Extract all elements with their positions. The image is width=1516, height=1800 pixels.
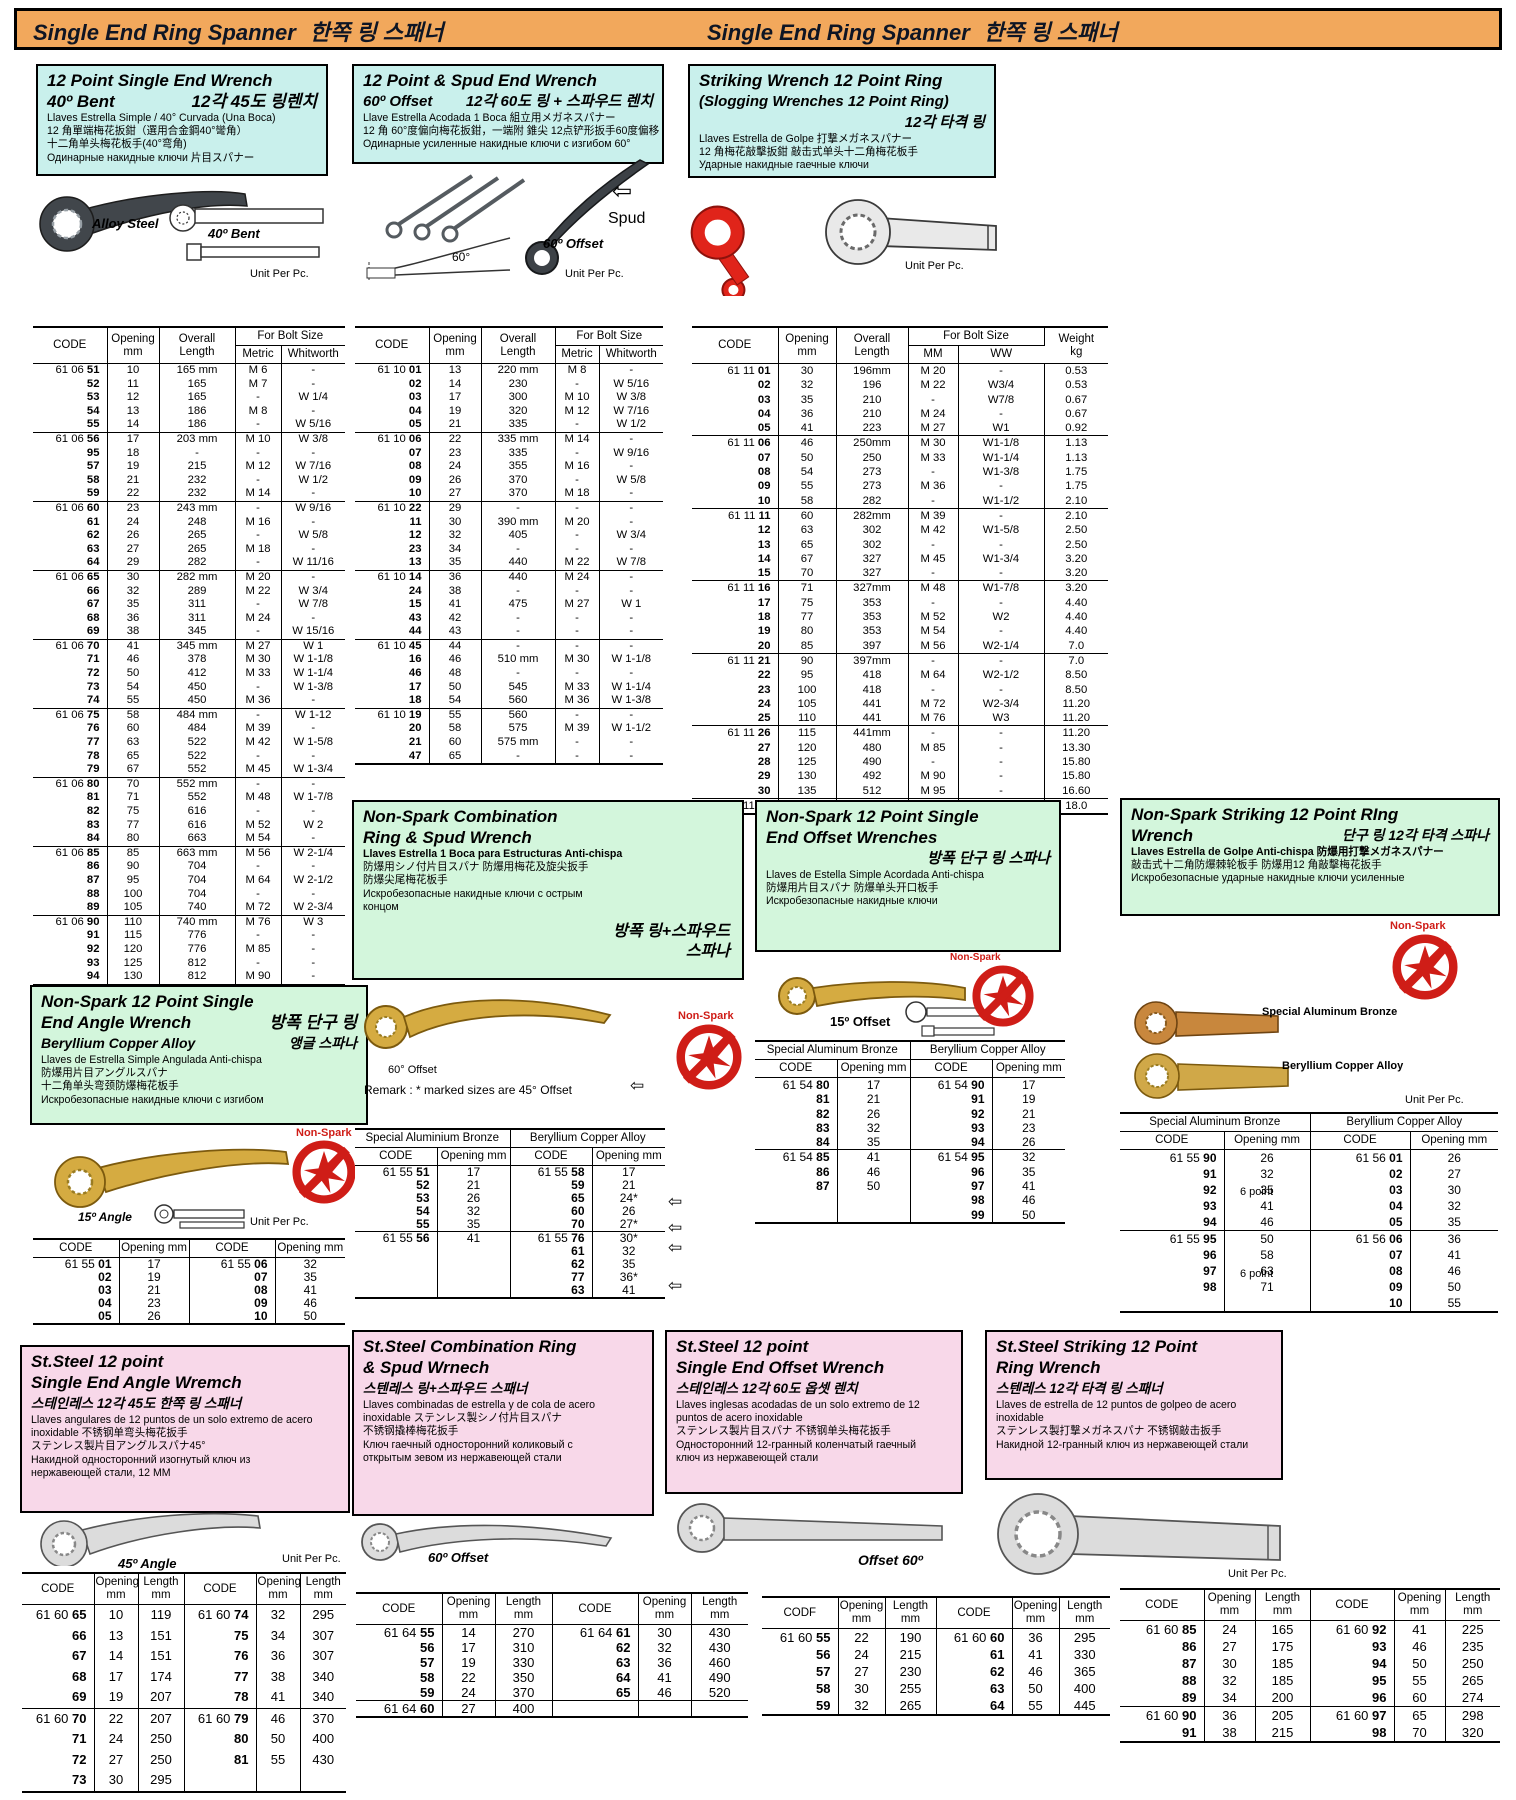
table-cell: W 1-3/4 — [281, 763, 345, 777]
offset-60-label: 60° Offset — [388, 1064, 437, 1076]
table-cell: 0.67 — [1044, 393, 1108, 407]
table-cell: - — [958, 596, 1044, 610]
table-cell: 19 — [442, 1655, 495, 1670]
table-row: 61 60 651011961 60 7432295 — [22, 1605, 346, 1626]
table-cell: 38 — [256, 1667, 300, 1688]
table-cell: 09 — [189, 1297, 275, 1310]
table-cell: 174 — [138, 1667, 184, 1688]
table-cell: 36 — [1012, 1629, 1059, 1647]
section-subtitle-kr: 12각 45도 링렌치 — [192, 91, 317, 112]
table-cell: 71 — [778, 581, 836, 596]
section-ststeel-angle-box: St.Steel 12 point Single End Angle Wremc… — [20, 1345, 350, 1513]
table-cell: 370 — [481, 474, 555, 488]
table-cell: 185 — [1255, 1655, 1310, 1672]
table-cell: M 30 — [908, 436, 958, 451]
table-cell: - — [599, 625, 663, 639]
table-cell: W 5/8 — [599, 474, 663, 488]
description-line: Ключ гаечный односторонний коликовый с — [363, 1439, 643, 1452]
bent-table: CODEOpening mmOverall LengthFor Bolt Siz… — [33, 326, 345, 986]
table-cell: 11 — [107, 378, 159, 392]
table-cell: 27* — [592, 1218, 665, 1232]
table-row: 9950 — [755, 1208, 1065, 1223]
ststeel-angle-table: CODEOpening mmLength mmCODEOpening mmLen… — [22, 1572, 346, 1793]
description-line: Накидной 12-гранный ключ из нержавеющей … — [996, 1439, 1272, 1452]
column-header: Length mm — [495, 1593, 552, 1625]
gold-spud-wrench-illustration — [360, 985, 615, 1060]
table-row: 0436210M 24-0.67 — [692, 407, 1108, 421]
table-cell — [184, 1770, 256, 1792]
table-cell: 50 — [1224, 1231, 1310, 1248]
table-row: 1130390 mmM 20- — [355, 516, 663, 530]
table-row: 0214230-W 5/16 — [355, 378, 663, 392]
table-cell: - — [958, 653, 1044, 668]
table-row: 1750545M 33W 1-1/4 — [355, 681, 663, 695]
table-cell: 62 — [33, 529, 107, 543]
table-cell: 95 — [33, 447, 107, 461]
table-cell: 41 — [256, 1687, 300, 1708]
table-cell: 64 — [33, 556, 107, 570]
table-row: 29130492M 90-15.80 — [692, 769, 1108, 783]
table-cell: 95 — [107, 874, 159, 888]
table-cell — [1120, 1295, 1224, 1312]
table-cell: 32 — [592, 1245, 665, 1258]
description-line: 12 角單端梅花扳鉗（選用合金鋼40°彎角） — [47, 125, 317, 138]
table-row: 5514186-W 5/16 — [33, 418, 345, 432]
table-cell: - — [281, 722, 345, 736]
table-cell: - — [281, 612, 345, 626]
table-cell: W 1-1/8 — [281, 653, 345, 667]
table-cell: 397 — [836, 639, 908, 654]
column-header: CODE — [355, 1148, 437, 1166]
column-header: Opening mm — [778, 327, 836, 364]
table-cell: 69 — [33, 625, 107, 639]
table-cell: - — [599, 364, 663, 378]
table-cell: 61 11 06 — [692, 436, 778, 451]
table-cell: W 1-1/4 — [599, 681, 663, 695]
table-row: 68171747738340 — [22, 1667, 346, 1688]
table-row: 83329323 — [755, 1121, 1065, 1135]
table-cell: 75 — [778, 596, 836, 610]
table-cell: 560 — [481, 708, 555, 722]
table-cell: 492 — [836, 769, 908, 783]
column-header: For Bolt Size — [908, 327, 1044, 346]
description-line: 防爆用シノ付片目スパナ 防爆用梅花及旋尖扳手 — [363, 861, 733, 874]
table-cell: 98 — [1120, 1279, 1224, 1295]
table-row: 7865522-- — [33, 750, 345, 764]
table-cell: 248 — [159, 516, 235, 530]
table-cell: 30 — [638, 1625, 691, 1641]
table-cell: 320 — [1445, 1724, 1500, 1742]
table-cell: 71 — [33, 653, 107, 667]
table-cell: - — [281, 364, 345, 378]
table-cell: 27 — [442, 1701, 495, 1718]
table-cell: 83 — [33, 819, 107, 833]
table-cell: - — [281, 447, 345, 461]
column-header: Opening mm — [256, 1573, 300, 1605]
table-cell: 17 — [592, 1166, 665, 1180]
table-row: 61 11 1160282mmM 39-2.10 — [692, 508, 1108, 523]
table-cell: 66 — [33, 585, 107, 599]
table-row: 61 06 5110165 mmM 6- — [33, 364, 345, 378]
table-cell: 274 — [1445, 1689, 1500, 1707]
table-row: 82269221 — [755, 1107, 1065, 1121]
table-cell: 15.80 — [1044, 755, 1108, 769]
arrow-left-icon: ⇦ — [668, 1240, 682, 1256]
column-header: Length mm — [691, 1593, 748, 1625]
table-cell: 10 — [189, 1310, 275, 1324]
table-row: 2438--- — [355, 585, 663, 599]
table-cell: 307 — [300, 1646, 346, 1667]
column-header: Length mm — [300, 1573, 346, 1605]
table-cell: M 90 — [235, 970, 281, 985]
table-cell: W 11/16 — [281, 556, 345, 570]
page-header-bar: Single End Ring Spanner한쪽 링 스패너 Single E… — [14, 8, 1502, 50]
table-cell: 61 11 11 — [692, 508, 778, 523]
table-cell: 05 — [692, 421, 778, 436]
table-cell: 265 — [885, 1697, 936, 1715]
table-cell: M 10 — [555, 391, 599, 405]
table-cell — [437, 1284, 510, 1298]
section-title: Striking Wrench 12 Point Ring — [699, 70, 985, 91]
table-cell: 61 55 95 — [1120, 1231, 1224, 1248]
table-row: 87301859450250 — [1120, 1655, 1500, 1672]
table-row: 0750250M 33W1-1/41.13 — [692, 451, 1108, 465]
table-cell: - — [555, 529, 599, 543]
table-cell: - — [481, 612, 555, 626]
table-cell: W 1-1/8 — [599, 653, 663, 667]
table-cell: 84 — [755, 1135, 837, 1150]
table-cell: 105 — [778, 697, 836, 711]
column-header: CODE — [33, 1239, 119, 1258]
column-header: CODE — [33, 327, 107, 364]
table-cell: - — [235, 750, 281, 764]
table-cell: 776 — [159, 929, 235, 943]
column-header: Beryllium Copper Alloy — [1310, 1113, 1498, 1132]
table-cell: 61 60 85 — [1120, 1621, 1204, 1639]
table-cell: 54 — [33, 405, 107, 419]
table-cell: W 1 — [599, 598, 663, 612]
catalog-table: CODFOpening mmLength mmCODEOpening mmLen… — [762, 1596, 1110, 1716]
table-cell: - — [908, 465, 958, 479]
description-line: Искробезопасные накидные ключи с острым … — [363, 888, 593, 914]
table-cell: - — [481, 585, 555, 599]
table-cell: 65 — [1394, 1707, 1445, 1725]
table-cell: 50 — [778, 451, 836, 465]
table-cell: 97 — [910, 1179, 992, 1193]
column-header: Opening mm — [1410, 1132, 1498, 1150]
table-cell: 812 — [159, 970, 235, 985]
table-cell — [755, 1208, 837, 1223]
table-cell: 92 — [1120, 1182, 1224, 1198]
table-cell: 18 — [355, 694, 429, 708]
table-cell: 205 — [1255, 1707, 1310, 1725]
table-cell: W 2-1/4 — [281, 846, 345, 860]
catalog-table: CODEOpening mmLength mmCODEOpening mmLen… — [22, 1572, 346, 1793]
table-cell: 327mm — [836, 581, 908, 596]
table-cell: 90 — [107, 860, 159, 874]
section-title: St.Steel 12 point — [31, 1351, 339, 1372]
table-cell: - — [281, 694, 345, 708]
table-cell: 61 60 60 — [936, 1629, 1012, 1647]
table-cell: 57 — [762, 1663, 838, 1680]
table-cell: M 36 — [908, 479, 958, 493]
table-cell: - — [235, 957, 281, 971]
table-cell: 335 mm — [481, 432, 555, 446]
table-cell: 30 — [838, 1680, 885, 1697]
table-cell: - — [555, 378, 599, 392]
table-cell: - — [958, 538, 1044, 552]
table-cell: 85 — [107, 846, 159, 860]
table-cell: 14 — [107, 418, 159, 432]
table-cell: 14 — [429, 378, 481, 392]
column-header: Whitworth — [281, 346, 345, 364]
table-cell: 151 — [138, 1626, 184, 1647]
table-cell: 46 — [429, 653, 481, 667]
table-row: 6632289M 22W 3/4 — [33, 585, 345, 599]
table-row: 0955273M 36-1.75 — [692, 479, 1108, 493]
table-cell: 552 — [159, 763, 235, 777]
table-row: 84359426 — [755, 1135, 1065, 1150]
table-cell: - — [908, 393, 958, 407]
table-cell: 04 — [1310, 1198, 1410, 1214]
table-cell: 125 — [778, 755, 836, 769]
table-cell: 24 — [429, 460, 481, 474]
table-cell: 61 10 14 — [355, 570, 429, 584]
table-cell: 370 — [495, 1685, 552, 1701]
table-row: 91382159870320 — [1120, 1724, 1500, 1742]
table-row: 53266524* — [355, 1192, 665, 1205]
table-cell: W 1/2 — [599, 418, 663, 432]
table-cell: 38 — [107, 625, 159, 639]
table-cell: - — [958, 755, 1044, 769]
table-cell: M 85 — [235, 943, 281, 957]
table-cell: W 1/4 — [281, 391, 345, 405]
section-subtitle-kr: 방폭 단구 링 스파나 — [766, 848, 1050, 869]
table-cell: 50 — [1394, 1655, 1445, 1672]
table-cell: M 39 — [235, 722, 281, 736]
table-cell: 65 — [510, 1192, 592, 1205]
table-cell: 120 — [107, 943, 159, 957]
table-cell: 68 — [33, 612, 107, 626]
column-header: Opening mm — [119, 1239, 189, 1258]
table-cell: 1.13 — [1044, 436, 1108, 451]
table-cell — [355, 1245, 437, 1258]
description-line: ключ из нержавеющей стали — [676, 1452, 952, 1465]
table-cell: 522 — [159, 736, 235, 750]
table-cell: 35 — [1410, 1214, 1498, 1231]
table-cell — [638, 1701, 691, 1718]
table-cell: M 8 — [555, 364, 599, 378]
table-row: 61 10 0113220 mmM 8- — [355, 364, 663, 378]
table-cell: 484 — [159, 722, 235, 736]
table-cell: 60 — [1394, 1689, 1445, 1707]
table-row: 1646510 mmM 30W 1-1/8 — [355, 653, 663, 667]
page-title-left: Single End Ring Spanner한쪽 링 스패너 — [33, 15, 443, 47]
table-cell: 04 — [33, 1297, 119, 1310]
table-row: 61 11 2190397mm--7.0 — [692, 653, 1108, 668]
table-cell: 61 55 76 — [510, 1232, 592, 1246]
table-cell: 430 — [691, 1625, 748, 1641]
table-cell: 35 — [429, 556, 481, 570]
table-cell: - — [958, 364, 1044, 379]
column-header: Beryllium Copper Alloy — [910, 1041, 1065, 1060]
table-cell: 61 60 70 — [22, 1708, 94, 1729]
table-row: 2085397M 56W2-1/47.0 — [692, 639, 1108, 654]
table-cell: 22 — [429, 432, 481, 446]
table-cell: - — [958, 407, 1044, 421]
table-cell: 73 — [33, 681, 107, 695]
table-cell: 50 — [256, 1729, 300, 1750]
table-cell: 32 — [638, 1640, 691, 1655]
table-cell: 60 — [107, 722, 159, 736]
table-row: 5821232-W 1/2 — [33, 474, 345, 488]
table-cell: 07 — [355, 447, 429, 461]
table-cell — [355, 1271, 437, 1284]
table-cell: 46 — [1012, 1663, 1059, 1680]
table-row: 30135512M 95-16.60 — [692, 784, 1108, 799]
table-cell: - — [958, 683, 1044, 697]
arrow-left-icon: ⇦ — [668, 1278, 682, 1294]
page-title-right: Single End Ring Spanner한쪽 링 스패너 — [707, 15, 1117, 47]
table-cell: 65 — [552, 1685, 638, 1701]
catalog-table: CODEOpening mmOverall LengthFor Bolt Siz… — [33, 326, 345, 986]
table-row: 61 06 6023243 mm-W 9/16 — [33, 501, 345, 515]
table-cell: M 30 — [555, 653, 599, 667]
table-cell: - — [555, 750, 599, 765]
table-row: 89342009660274 — [1120, 1689, 1500, 1707]
table-cell: 55 — [429, 708, 481, 722]
table-row: 97630846 — [1120, 1263, 1498, 1279]
table-cell: 46 — [1410, 1263, 1498, 1279]
column-header: Metric — [555, 346, 599, 364]
table-row: 24105441M 72W2-3/411.20 — [692, 697, 1108, 711]
section-subtitle: (Slogging Wrenches 12 Point Ring) — [699, 91, 985, 112]
table-cell: 13.30 — [1044, 741, 1108, 755]
table-row: 52215921 — [355, 1179, 665, 1192]
section-nonspark-striking-box: Non-Spark Striking 12 Point RIng Wrench단… — [1120, 798, 1500, 916]
table-cell: 61 06 60 — [33, 501, 107, 515]
table-cell: M 54 — [908, 624, 958, 638]
nonspark-label: Non-Spark — [296, 1127, 352, 1139]
table-cell: 307 — [300, 1626, 346, 1647]
table-cell: M 72 — [235, 901, 281, 915]
table-cell: 58 — [778, 494, 836, 509]
table-cell: 30* — [592, 1232, 665, 1246]
table-cell: 22 — [107, 487, 159, 501]
table-cell: 61 11 26 — [692, 726, 778, 741]
table-cell: W 1-1/2 — [599, 722, 663, 736]
description-line: 12 角 60°度偏向梅花扳鉗，一端附 錐尖 12点铲形扳手60度偏移 — [363, 125, 653, 138]
table-cell: 295 — [138, 1770, 184, 1792]
catalog-table: CODEOpening mmCODEOpening mm61 55 011761… — [33, 1238, 345, 1325]
table-row: 88100704-- — [33, 888, 345, 902]
table-cell: 8.50 — [1044, 683, 1108, 697]
table-cell: 17 — [992, 1078, 1065, 1093]
table-row: 9846 — [755, 1193, 1065, 1207]
table-cell: - — [481, 750, 555, 765]
table-cell: 17 — [692, 596, 778, 610]
table-cell: 57 — [356, 1655, 442, 1670]
table-row: 5312165-W 1/4 — [33, 391, 345, 405]
table-cell: 91 — [910, 1092, 992, 1106]
table-cell: 2.50 — [1044, 538, 1108, 552]
column-header: Opening mm — [1394, 1589, 1445, 1621]
description-line: Llaves de Estrella Simple Angulada Anti-… — [41, 1054, 357, 1067]
table-cell: 265 — [1445, 1672, 1500, 1689]
table-cell: 27 — [107, 543, 159, 557]
table-cell: - — [908, 683, 958, 697]
table-cell: 11.20 — [1044, 726, 1108, 741]
table-cell: 52 — [33, 378, 107, 392]
table-cell: 345 mm — [159, 639, 235, 653]
column-header: Length mm — [1255, 1589, 1310, 1621]
description-line: Llaves Estrella de Golpe 打撃メガネスパナー — [699, 133, 985, 146]
nonspark-logo-icon — [292, 1140, 356, 1204]
table-cell: M 27 — [235, 639, 281, 653]
table-cell: 62 — [936, 1663, 1012, 1680]
section-title: St.Steel Striking 12 Point — [996, 1336, 1272, 1357]
section-title: Non-Spark Striking 12 Point RIng — [1131, 804, 1489, 825]
table-cell: 56 — [762, 1646, 838, 1663]
table-cell: M 18 — [555, 487, 599, 501]
table-cell: 400 — [300, 1729, 346, 1750]
table-cell: W 3/8 — [599, 391, 663, 405]
description-line: Одинарные усиленные накидные ключи с изг… — [363, 138, 653, 151]
table-cell: M 33 — [908, 451, 958, 465]
table-row: 2058575M 39W 1-1/2 — [355, 722, 663, 736]
section-subtitle-kr: 12각 60도 링 + 스파우드 렌치 — [466, 91, 653, 112]
table-cell: 22 — [838, 1629, 885, 1647]
table-cell: 2.10 — [1044, 508, 1108, 523]
table-cell: 50 — [107, 667, 159, 681]
table-cell: 81 — [755, 1092, 837, 1106]
table-cell: M 48 — [235, 791, 281, 805]
table-cell: 09 — [355, 474, 429, 488]
table-cell: 663 — [159, 832, 235, 846]
table-cell: 62 — [552, 1640, 638, 1655]
table-cell: - — [555, 447, 599, 461]
table-cell: 27 — [838, 1663, 885, 1680]
table-cell: 53 — [33, 391, 107, 405]
table-cell: 200 — [1255, 1689, 1310, 1707]
table-cell: W 5/16 — [599, 378, 663, 392]
table-cell: 77 — [184, 1667, 256, 1688]
table-cell: 73 — [22, 1770, 94, 1792]
table-cell: 61 60 65 — [22, 1605, 94, 1626]
table-cell: 115 — [107, 929, 159, 943]
table-cell: 15.80 — [1044, 769, 1108, 783]
table-cell: 50 — [429, 681, 481, 695]
description-line: inoxidable 不锈钢单弯头梅花扳手 — [31, 1427, 339, 1440]
table-row: 61 54 801761 54 9017 — [755, 1078, 1065, 1093]
table-cell: 34 — [1204, 1689, 1255, 1707]
section-ststeel-striking-box: St.Steel Striking 12 Point Ring Wrench 스… — [985, 1330, 1283, 1480]
table-row: 0335210-W7/80.67 — [692, 393, 1108, 407]
table-cell: 94 — [1120, 1214, 1224, 1231]
table-cell: 41 — [638, 1670, 691, 1685]
table-cell: 13 — [107, 405, 159, 419]
table-cell: 26 — [837, 1107, 910, 1121]
table-cell: 59 — [33, 487, 107, 501]
table-cell: 282mm — [836, 508, 908, 523]
column-header: Opening mm — [94, 1573, 138, 1605]
table-cell: 190 — [885, 1629, 936, 1647]
column-header: CODE — [1120, 1132, 1224, 1150]
catalog-table: Special Aluminum BronzeBeryllium Copper … — [1120, 1112, 1498, 1313]
table-cell: 46 — [778, 436, 836, 451]
section-subtitle-kr: 방폭 단구 링 — [269, 1012, 357, 1033]
table-cell: W 1-5/8 — [281, 736, 345, 750]
